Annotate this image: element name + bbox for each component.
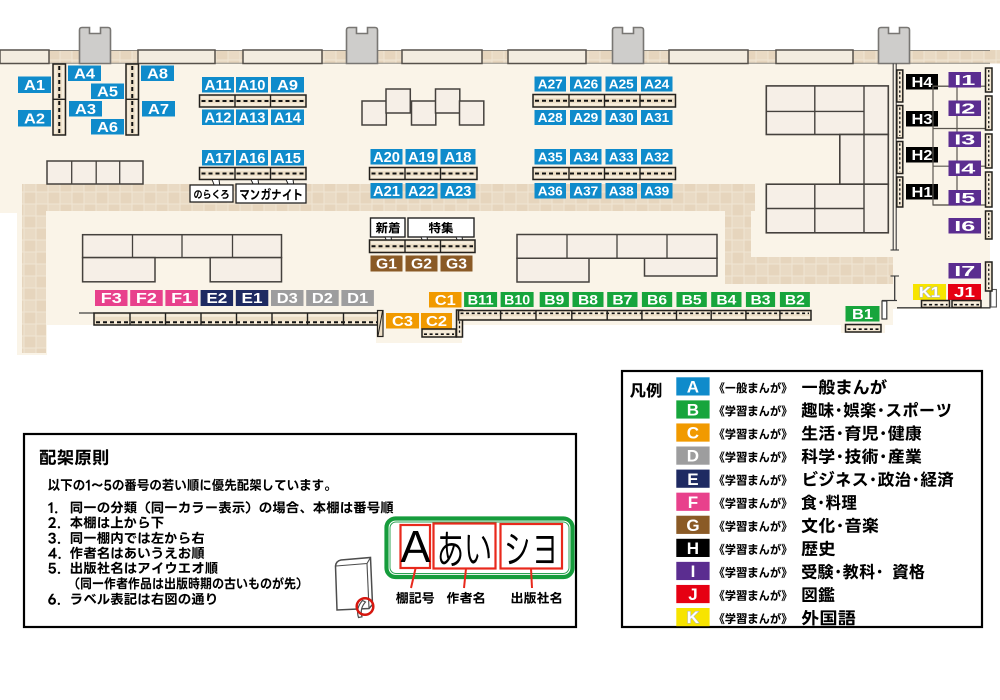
- svg-text:A15: A15: [274, 151, 301, 167]
- svg-text:G1: G1: [376, 257, 397, 273]
- svg-text:F3: F3: [101, 291, 122, 307]
- svg-text:A31: A31: [644, 110, 669, 125]
- svg-text:A5: A5: [97, 84, 118, 100]
- svg-text:A23: A23: [445, 184, 472, 200]
- svg-text:D3: D3: [277, 291, 298, 307]
- svg-text:F: F: [688, 493, 698, 512]
- svg-text:H2: H2: [912, 148, 933, 164]
- svg-text:A4: A4: [74, 66, 95, 82]
- svg-text:B4: B4: [716, 292, 736, 308]
- svg-text:B1: B1: [852, 307, 873, 323]
- svg-text:A: A: [687, 378, 699, 397]
- svg-text:K: K: [687, 608, 700, 627]
- svg-text:K1: K1: [919, 285, 940, 301]
- svg-text:B3: B3: [751, 292, 771, 308]
- svg-text:B9: B9: [544, 292, 564, 308]
- svg-text:H4: H4: [912, 75, 933, 91]
- svg-text:A38: A38: [609, 183, 634, 198]
- svg-text:A10: A10: [239, 78, 266, 94]
- svg-text:A9: A9: [277, 78, 298, 94]
- svg-text:G: G: [686, 516, 699, 535]
- svg-text:C1: C1: [435, 293, 456, 309]
- svg-text:A13: A13: [239, 110, 266, 126]
- svg-text:C2: C2: [426, 314, 447, 330]
- svg-text:A33: A33: [609, 149, 634, 164]
- svg-text:A19: A19: [408, 150, 435, 166]
- svg-text:B2: B2: [785, 292, 805, 308]
- svg-text:I4: I4: [954, 161, 975, 177]
- svg-text:B8: B8: [578, 292, 598, 308]
- svg-text:A16: A16: [239, 151, 266, 167]
- svg-text:B10: B10: [504, 292, 530, 308]
- svg-text:A25: A25: [609, 77, 634, 92]
- svg-text:E1: E1: [242, 291, 263, 307]
- svg-text:A26: A26: [573, 77, 598, 92]
- svg-text:E: E: [687, 470, 698, 489]
- svg-text:D2: D2: [312, 291, 333, 307]
- svg-text:J: J: [688, 585, 697, 604]
- svg-text:A21: A21: [373, 184, 400, 200]
- svg-text:A1: A1: [24, 78, 45, 94]
- svg-text:B7: B7: [612, 292, 632, 308]
- svg-text:A29: A29: [573, 110, 598, 125]
- svg-text:H3: H3: [912, 112, 933, 128]
- svg-text:B6: B6: [647, 292, 667, 308]
- svg-text:A36: A36: [538, 183, 563, 198]
- svg-text:B5: B5: [682, 292, 702, 308]
- svg-text:A22: A22: [408, 184, 435, 200]
- svg-text:A11: A11: [205, 78, 232, 94]
- svg-text:G2: G2: [411, 257, 432, 273]
- svg-text:H1: H1: [912, 185, 933, 201]
- svg-text:G3: G3: [446, 257, 467, 273]
- svg-text:I5: I5: [954, 191, 975, 207]
- svg-text:A8: A8: [147, 66, 168, 82]
- svg-text:A35: A35: [538, 149, 563, 164]
- svg-text:I1: I1: [954, 73, 975, 89]
- svg-text:H: H: [687, 539, 699, 558]
- svg-text:A28: A28: [538, 110, 563, 125]
- svg-text:I: I: [691, 562, 696, 581]
- svg-text:E2: E2: [206, 291, 227, 307]
- svg-text:C3: C3: [392, 314, 413, 330]
- svg-text:A6: A6: [97, 120, 118, 136]
- svg-text:A32: A32: [644, 149, 669, 164]
- svg-text:A37: A37: [573, 183, 598, 198]
- svg-text:C: C: [687, 424, 699, 443]
- svg-text:A39: A39: [644, 183, 669, 198]
- svg-text:B: B: [687, 401, 699, 420]
- svg-text:B11: B11: [468, 292, 494, 308]
- svg-text:I3: I3: [954, 132, 975, 148]
- svg-text:D1: D1: [347, 291, 368, 307]
- svg-text:I2: I2: [954, 101, 975, 117]
- svg-text:A3: A3: [75, 102, 96, 118]
- svg-text:D: D: [687, 447, 699, 466]
- svg-text:A14: A14: [274, 110, 301, 126]
- svg-text:A17: A17: [205, 151, 232, 167]
- svg-text:A34: A34: [573, 149, 599, 164]
- svg-text:A7: A7: [148, 102, 169, 118]
- svg-text:A18: A18: [445, 150, 472, 166]
- svg-text:I6: I6: [954, 219, 975, 235]
- svg-text:I7: I7: [954, 264, 975, 280]
- svg-text:J1: J1: [954, 285, 975, 301]
- svg-text:F2: F2: [136, 291, 157, 307]
- svg-text:A30: A30: [609, 110, 634, 125]
- svg-text:A2: A2: [24, 111, 45, 127]
- svg-text:A27: A27: [538, 77, 563, 92]
- svg-text:A20: A20: [373, 150, 400, 166]
- svg-text:A24: A24: [644, 77, 670, 92]
- svg-text:A12: A12: [205, 110, 232, 126]
- svg-text:F1: F1: [171, 291, 192, 307]
